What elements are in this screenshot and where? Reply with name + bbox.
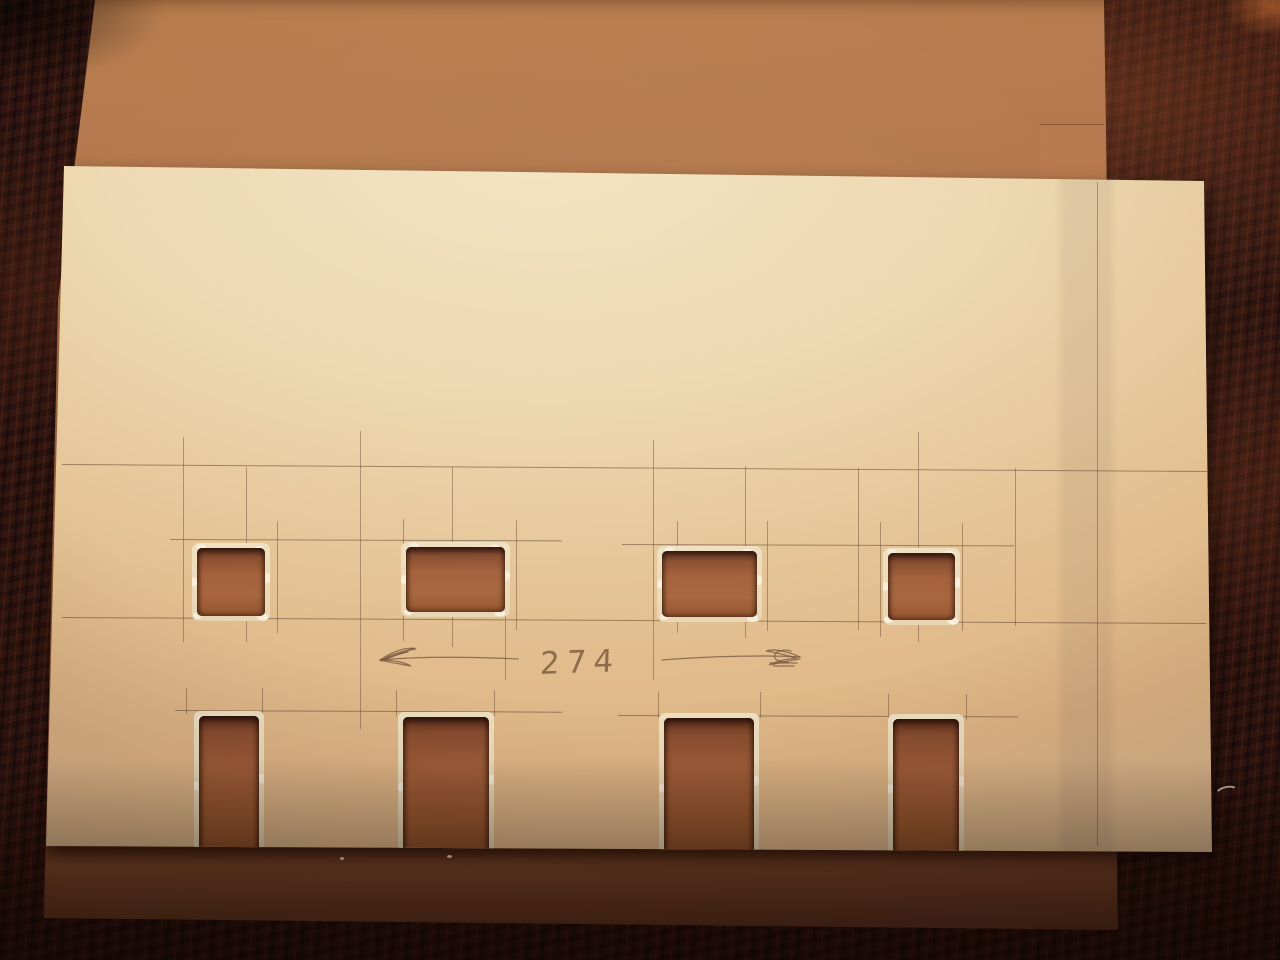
styrene-shaving [340,857,344,860]
pencil-arrow-left-icon [350,642,525,678]
window-opening-1-hole [197,548,265,616]
pencil-guideline [1015,468,1016,626]
pencil-guideline [880,522,881,637]
pencil-guideline [966,694,967,720]
pencil-arrow-right-icon [658,642,833,678]
door-opening-2-hole [403,717,489,862]
pencil-guideline [183,437,184,642]
pencil-guideline [360,431,361,729]
pencil-guideline [1097,182,1098,846]
pencil-guideline [760,692,761,718]
window-opening-4-hole [888,553,955,620]
facade-sheet-wrapper: 274 [0,0,1280,960]
pencil-guideline [858,468,859,630]
door-opening-1 [194,711,264,861]
pencil-guideline [277,521,278,633]
door-opening-1-hole [199,716,259,861]
window-opening-3 [657,546,762,622]
door-opening-3-hole [664,718,754,863]
styrene-facade-sheet: 274 [0,0,1280,960]
window-opening-1 [192,543,270,621]
pencil-guideline [494,690,495,716]
pencil-guideline [767,521,768,631]
pencil-guideline [653,440,654,680]
pencil-guideline [658,692,659,718]
pencil-guideline [62,464,1207,472]
pencil-guideline [186,688,187,714]
pencil-dimension-label: 274 [539,642,650,682]
workbench-photo: 274 [0,0,1280,960]
pencil-guideline [396,690,397,716]
pencil-guideline [262,688,263,714]
door-opening-4 [888,714,964,864]
door-opening-2 [398,712,494,862]
door-opening-4-hole [893,719,959,864]
window-opening-2-hole [406,547,505,612]
pencil-guideline [962,523,963,631]
door-opening-3 [659,713,759,863]
pencil-guideline [516,520,517,630]
window-opening-2 [401,542,510,617]
window-opening-3-hole [662,551,757,617]
window-opening-4 [883,548,960,625]
styrene-shaving [447,855,452,858]
